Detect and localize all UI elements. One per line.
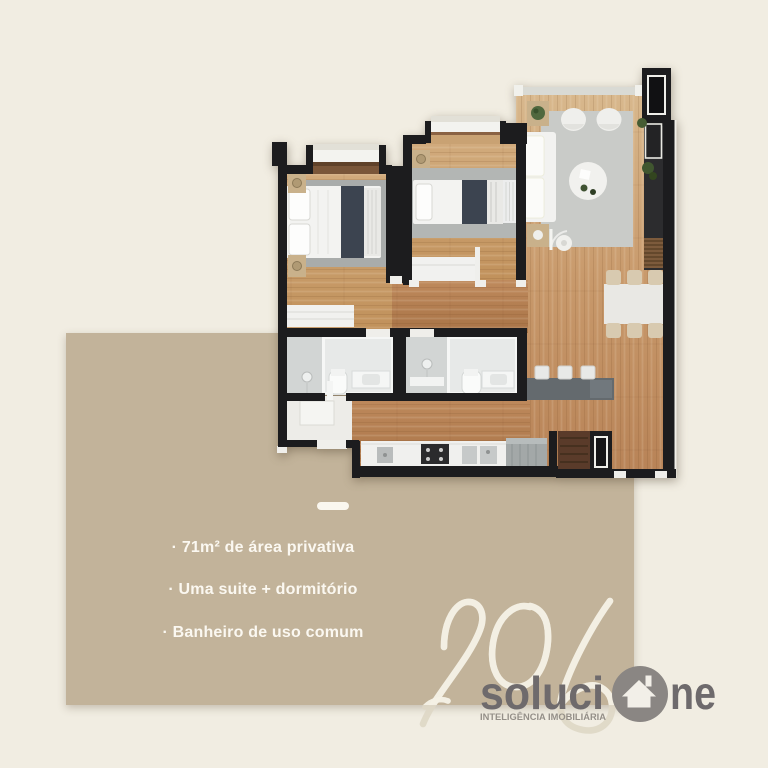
- svg-text:INTELIGÊNCIA IMOBILIÁRIA: INTELIGÊNCIA IMOBILIÁRIA: [480, 711, 606, 723]
- svg-text:ne: ne: [670, 667, 716, 719]
